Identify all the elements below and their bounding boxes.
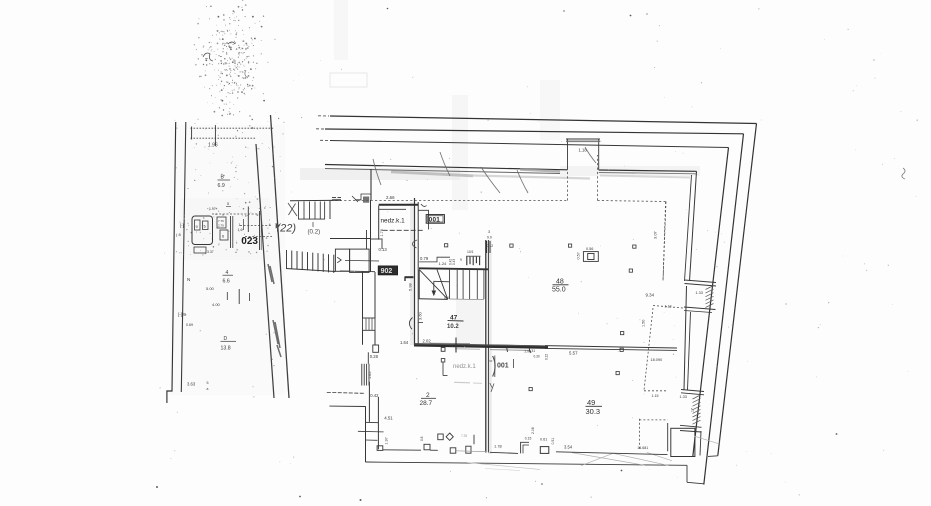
svg-text:nedz.k.1: nedz.k.1	[453, 364, 476, 370]
svg-text:5.00: 5.00	[206, 286, 215, 291]
svg-text:(0.2): (0.2)	[308, 229, 321, 236]
svg-text:7.76: 7.76	[218, 219, 224, 223]
svg-text:6.6: 6.6	[223, 279, 230, 285]
svg-text:2.08: 2.08	[531, 427, 535, 434]
svg-text:1.13: 1.13	[665, 305, 672, 309]
svg-text:55.0: 55.0	[552, 287, 566, 294]
svg-text:1.15: 1.15	[652, 394, 659, 398]
svg-text:18.090: 18.090	[651, 358, 663, 362]
svg-text:2.02: 2.02	[423, 339, 432, 344]
svg-text:0.13: 0.13	[379, 247, 388, 252]
svg-text:0.57: 0.57	[577, 252, 581, 259]
svg-text:023: 023	[241, 236, 258, 247]
svg-text:3.07: 3.07	[653, 230, 658, 239]
svg-text:2.66: 2.66	[386, 195, 395, 200]
svg-text:0.69: 0.69	[186, 323, 193, 327]
svg-text:9.9: 9.9	[487, 236, 492, 240]
svg-text:(22): (22)	[277, 223, 297, 235]
svg-text:10/1: 10/1	[467, 250, 474, 254]
svg-text:0.12: 0.12	[487, 244, 494, 248]
svg-text:13.8: 13.8	[221, 346, 231, 352]
svg-text:( 8: ( 8	[176, 232, 181, 237]
svg-text:0.22: 0.22	[545, 354, 549, 360]
svg-text:0.79: 0.79	[420, 256, 429, 261]
svg-text:1.24: 1.24	[439, 261, 448, 266]
svg-text:1.33: 1.33	[680, 395, 687, 399]
svg-text:6.9: 6.9	[218, 183, 225, 189]
svg-text:1.78: 1.78	[494, 444, 503, 449]
svg-text:0.51: 0.51	[551, 438, 555, 445]
svg-text:0.43: 0.43	[452, 259, 456, 265]
svg-text:5: 5	[204, 225, 206, 229]
svg-text:0.28: 0.28	[370, 354, 379, 359]
svg-text:30.3: 30.3	[586, 407, 601, 416]
svg-text:7.39: 7.39	[461, 434, 467, 438]
svg-text:nedz.k.1: nedz.k.1	[381, 218, 406, 225]
svg-text:5.98: 5.98	[408, 282, 413, 291]
svg-text:5: 5	[227, 202, 229, 206]
svg-text:3.60: 3.60	[418, 311, 423, 320]
svg-text:28.7: 28.7	[420, 400, 433, 407]
svg-text:5: 5	[207, 381, 209, 385]
svg-text:001: 001	[429, 217, 441, 224]
svg-text:5.57: 5.57	[569, 351, 578, 356]
svg-text:0.6: 0.6	[420, 436, 424, 441]
svg-text:3.63: 3.63	[187, 382, 196, 387]
svg-text:4.51: 4.51	[384, 416, 393, 421]
svg-text:0.15: 0.15	[525, 437, 532, 441]
svg-text:1.6: 1.6	[238, 228, 243, 232]
svg-text:4.00: 4.00	[212, 302, 221, 307]
svg-text:902: 902	[381, 268, 393, 275]
svg-text:a: a	[207, 387, 209, 391]
svg-text:9.34: 9.34	[646, 293, 655, 298]
svg-text:1.97: 1.97	[209, 207, 216, 211]
svg-text:1.31: 1.31	[529, 349, 536, 353]
svg-text:49: 49	[587, 398, 595, 407]
svg-text:0.42: 0.42	[370, 393, 379, 398]
svg-text:[-]: [-]	[180, 223, 184, 228]
svg-text:001: 001	[497, 363, 509, 370]
svg-text:[-]|9: [-]|9	[178, 312, 186, 317]
svg-text:1.96: 1.96	[208, 143, 218, 149]
svg-text:3.37: 3.37	[207, 250, 214, 254]
svg-text:1.65: 1.65	[368, 372, 372, 379]
svg-text:1.97: 1.97	[385, 437, 389, 444]
svg-text:10.2: 10.2	[447, 324, 459, 330]
svg-text:1.50: 1.50	[642, 320, 646, 327]
svg-text:N: N	[187, 277, 190, 282]
svg-text:9: 9	[460, 258, 462, 262]
svg-text:14.681: 14.681	[637, 446, 648, 450]
svg-text:0.30: 0.30	[534, 355, 540, 359]
svg-text:0.56: 0.56	[586, 247, 593, 251]
svg-text:3.54: 3.54	[564, 444, 573, 449]
svg-text:1.76: 1.76	[380, 229, 384, 236]
svg-text:1.33: 1.33	[696, 291, 703, 295]
svg-text:0.61: 0.61	[540, 438, 547, 442]
svg-text:1.64: 1.64	[400, 340, 409, 345]
svg-text:3: 3	[488, 230, 490, 234]
svg-text:2.79: 2.79	[218, 224, 224, 228]
svg-text:1: 1	[239, 223, 241, 227]
svg-text:17: 17	[691, 408, 695, 412]
